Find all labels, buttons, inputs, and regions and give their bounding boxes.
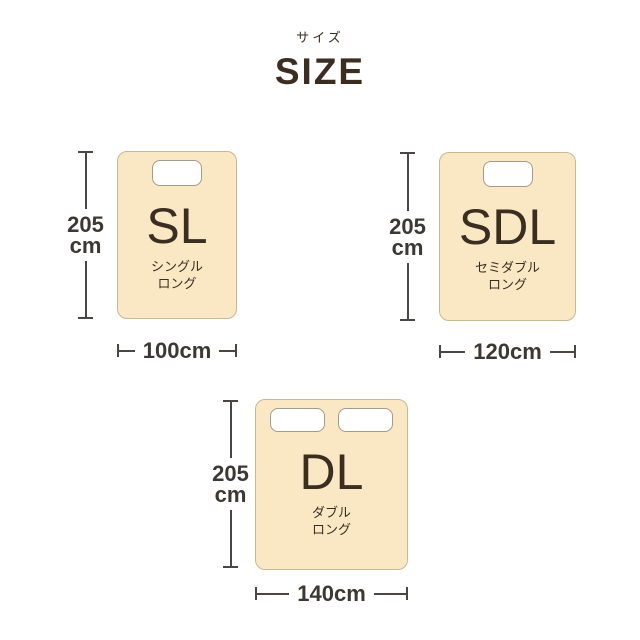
height-label-sdl: 205 cm bbox=[389, 216, 426, 258]
size-name-line1: シングル bbox=[151, 259, 203, 274]
size-name-line2: ロング bbox=[312, 522, 351, 537]
dimension-line bbox=[374, 593, 406, 595]
page-header: サイズ SIZE bbox=[0, 27, 640, 90]
mattress-single-long: SL シングル ロング bbox=[117, 151, 237, 319]
width-label-sdl: 120cm bbox=[473, 341, 542, 363]
mattress-semi-double-long: SDL セミダブル ロング bbox=[439, 152, 576, 321]
dimension-line bbox=[230, 510, 232, 566]
width-label-sl: 100cm bbox=[143, 340, 212, 362]
dimension-line bbox=[219, 350, 235, 352]
width-dimension-sdl: 120cm bbox=[439, 344, 576, 359]
pillow bbox=[152, 160, 202, 186]
height-value: 205 bbox=[389, 216, 426, 237]
size-name-japanese-sdl: セミダブル ロング bbox=[475, 259, 540, 293]
dimension-line bbox=[85, 261, 87, 317]
width-dimension-dl: 140cm bbox=[255, 586, 408, 601]
size-name-japanese-sl: シングル ロング bbox=[151, 258, 203, 292]
height-dimension-sdl: 205 cm bbox=[400, 152, 415, 321]
dimension-cap bbox=[406, 587, 408, 600]
size-abbreviation-sdl: SDL bbox=[459, 202, 556, 252]
width-dimension-sl: 100cm bbox=[117, 343, 237, 358]
dimension-line bbox=[119, 350, 135, 352]
dimension-line bbox=[407, 263, 409, 320]
size-name-line2: ロング bbox=[157, 276, 196, 291]
size-name-line2: ロング bbox=[488, 277, 527, 292]
size-abbreviation-sl: SL bbox=[146, 201, 207, 251]
width-label-dl: 140cm bbox=[297, 583, 366, 605]
height-label-dl: 205 cm bbox=[212, 463, 249, 505]
dimension-line bbox=[407, 154, 409, 211]
mattress-double-long: DL ダブル ロング bbox=[255, 399, 408, 570]
dimension-line bbox=[441, 351, 465, 353]
dimension-line bbox=[257, 593, 289, 595]
height-dimension-sl: 205 cm bbox=[78, 151, 93, 319]
pillow-row bbox=[152, 160, 202, 186]
height-unit: cm bbox=[392, 237, 424, 258]
dimension-cap bbox=[223, 566, 238, 568]
height-value: 205 bbox=[212, 463, 249, 484]
height-unit: cm bbox=[70, 235, 102, 256]
dimension-cap bbox=[400, 319, 415, 321]
pillow bbox=[338, 408, 393, 432]
dimension-cap bbox=[574, 345, 576, 358]
height-unit: cm bbox=[215, 484, 247, 505]
height-dimension-dl: 205 cm bbox=[223, 400, 238, 568]
dimension-line bbox=[550, 351, 574, 353]
size-guide-page: サイズ SIZE 205 cm SL シングル ロング 100cm bbox=[0, 0, 640, 640]
size-abbreviation-dl: DL bbox=[300, 447, 364, 497]
dimension-line bbox=[85, 153, 87, 209]
dimension-line bbox=[230, 402, 232, 458]
page-subtitle-japanese: サイズ bbox=[0, 27, 640, 46]
pillow bbox=[483, 161, 533, 187]
height-value: 205 bbox=[67, 214, 104, 235]
height-label-sl: 205 cm bbox=[67, 214, 104, 256]
pillow bbox=[270, 408, 325, 432]
size-name-line1: ダブル bbox=[312, 505, 351, 520]
size-name-japanese-dl: ダブル ロング bbox=[312, 504, 351, 538]
dimension-cap bbox=[235, 344, 237, 357]
page-title: SIZE bbox=[0, 53, 640, 90]
pillow-row bbox=[270, 408, 393, 432]
pillow-row bbox=[483, 161, 533, 187]
dimension-cap bbox=[78, 317, 93, 319]
size-name-line1: セミダブル bbox=[475, 260, 540, 275]
